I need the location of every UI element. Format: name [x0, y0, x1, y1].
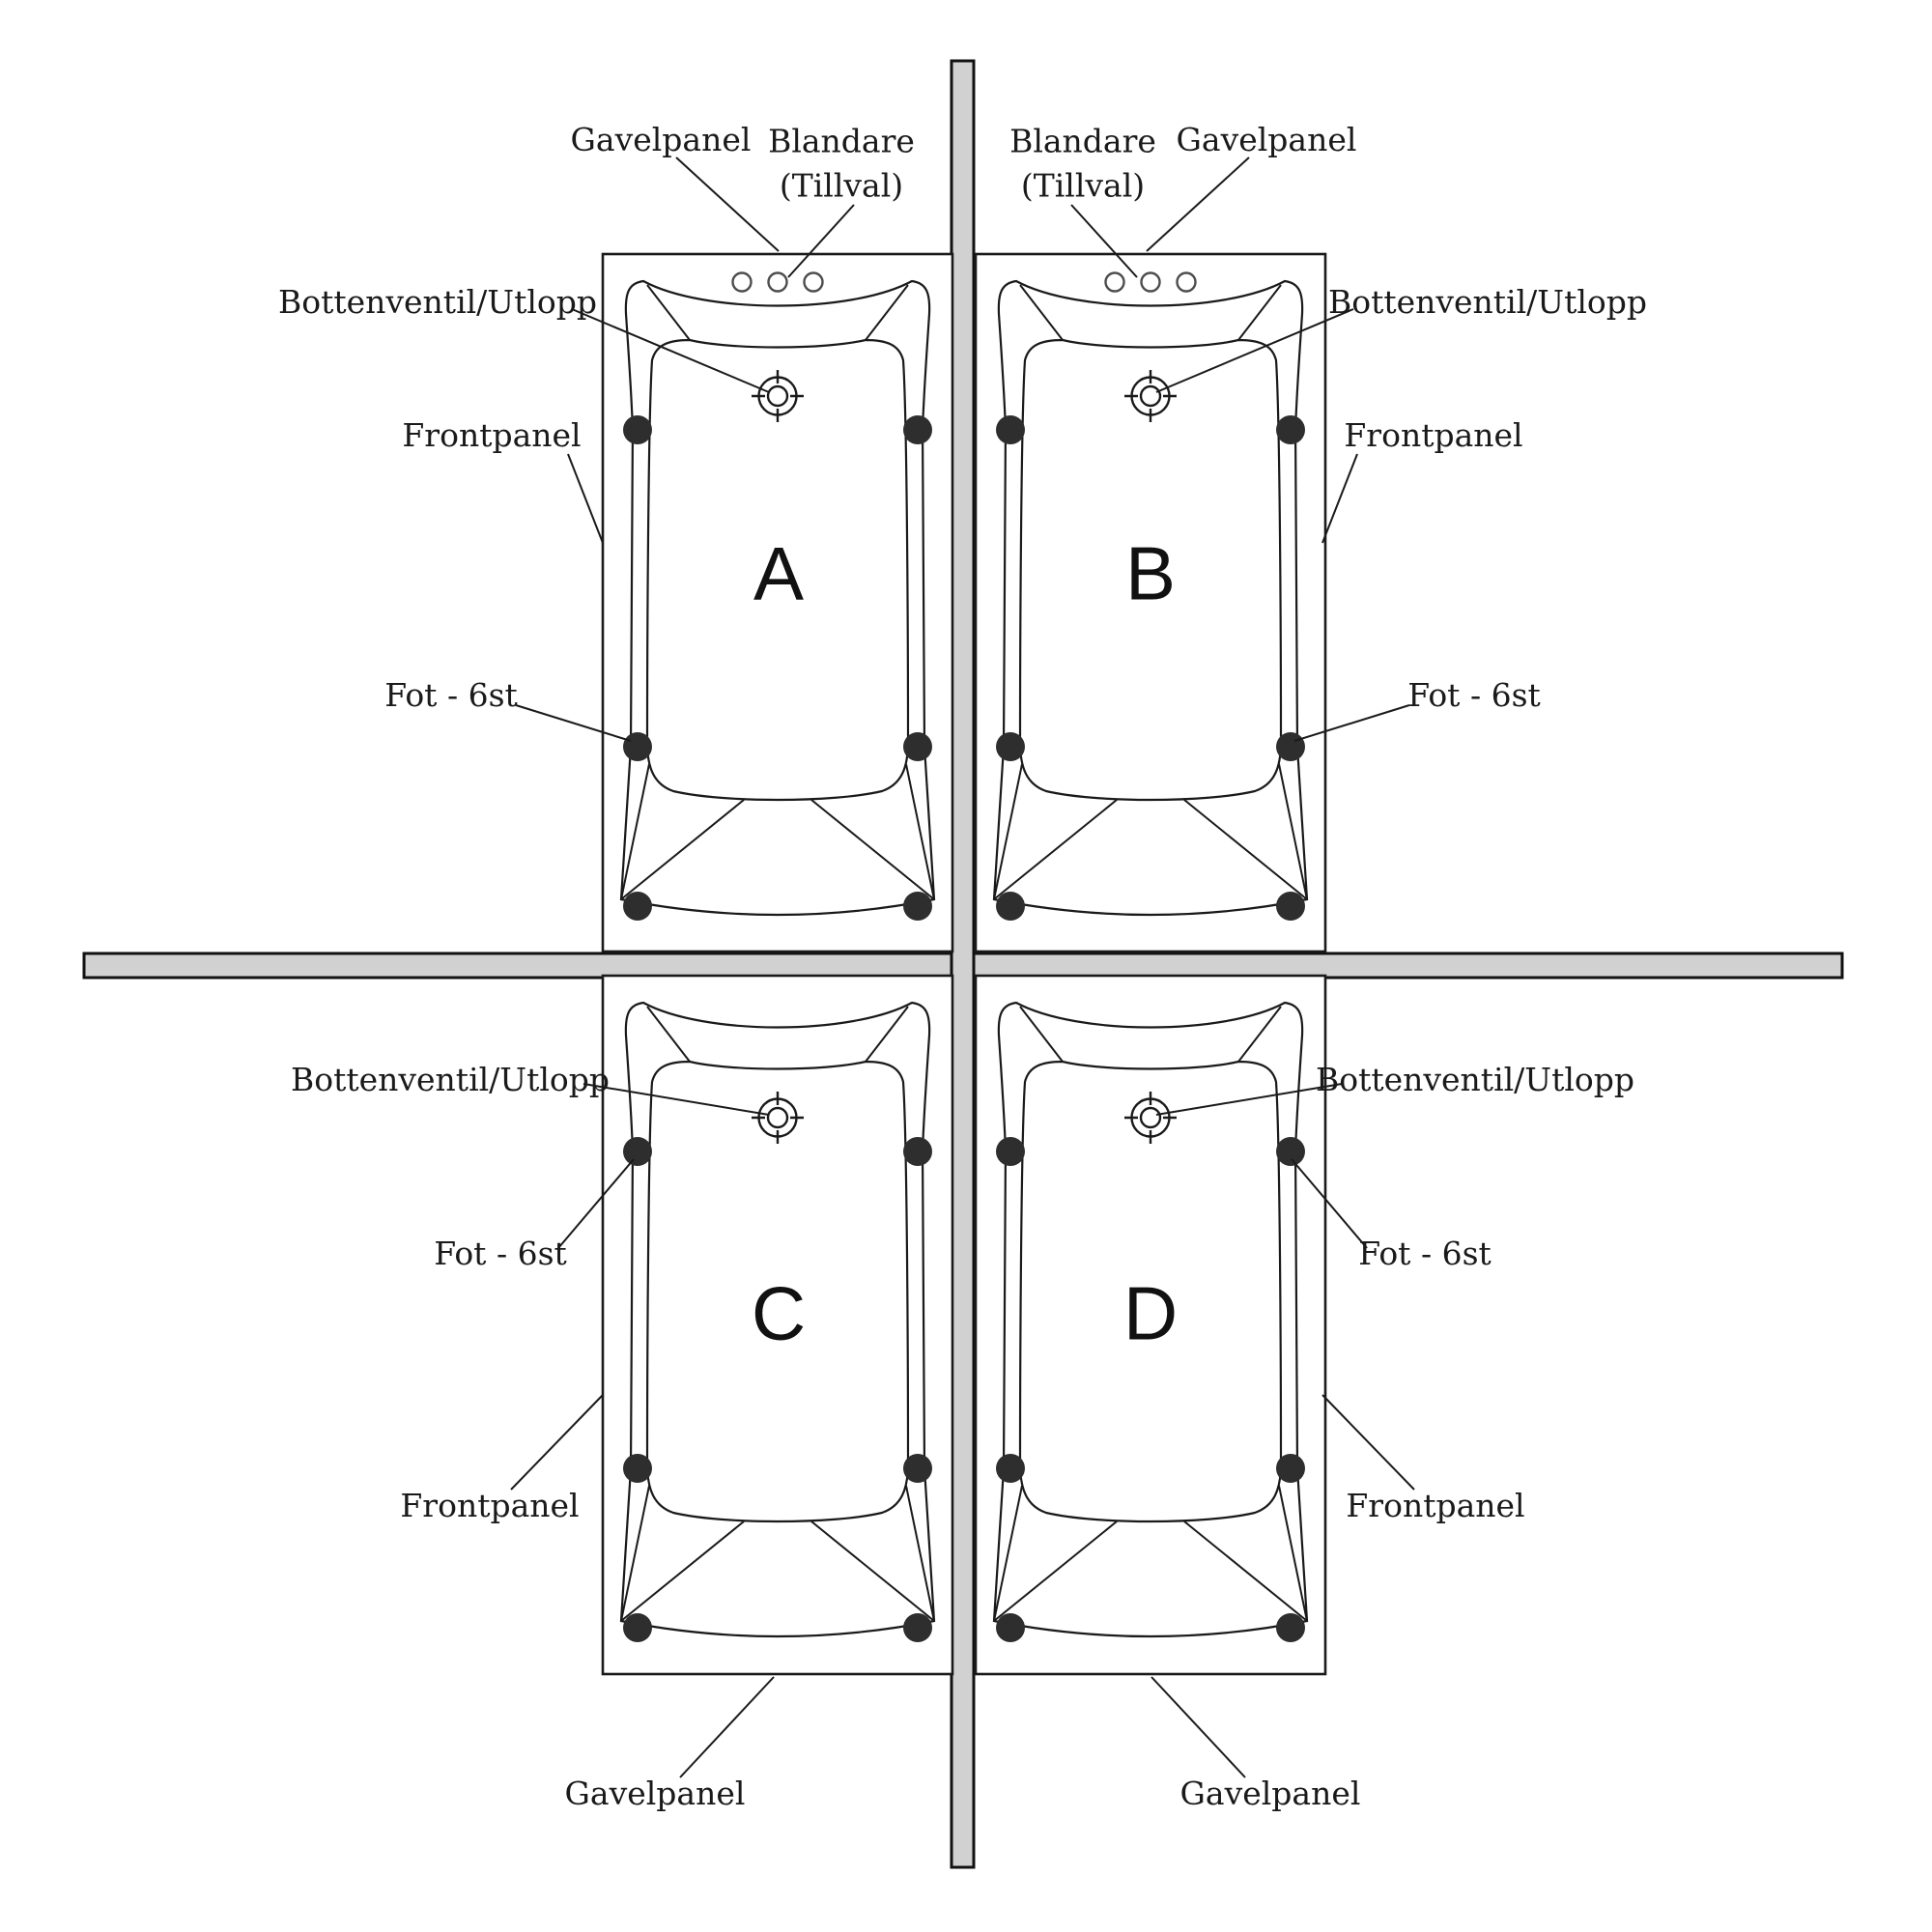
leader-frontpanel-d — [1322, 1395, 1414, 1490]
label-gavelpanel-b: Gavelpanel — [1177, 118, 1357, 162]
label-gavelpanel-a: Gavelpanel — [571, 118, 752, 162]
label-blandare-a-line2: (Tillval) — [768, 163, 915, 208]
label-blandare-b: Blandare (Tillval) — [1009, 119, 1156, 207]
label-bottenventil-b: Bottenventil/Utlopp — [1328, 280, 1647, 325]
label-bottenventil-c: Bottenventil/Utlopp — [291, 1058, 610, 1102]
label-frontpanel-b: Frontpanel — [1344, 413, 1522, 458]
label-blandare-a-line1: Blandare — [768, 119, 915, 163]
tub-letter-b: B — [1125, 530, 1176, 618]
label-fot-a: Fot - 6st — [384, 673, 518, 718]
label-frontpanel-c: Frontpanel — [400, 1484, 579, 1528]
label-blandare-b-line2: (Tillval) — [1009, 163, 1156, 208]
diagram-canvas: Gavelpanel Blandare (Tillval) Bottenvent… — [0, 0, 1932, 1932]
label-fot-c: Fot - 6st — [434, 1232, 567, 1276]
mixer-holes-a — [733, 273, 823, 292]
label-bottenventil-a: Bottenventil/Utlopp — [278, 280, 597, 325]
leader-gavelpanel-d — [1151, 1677, 1245, 1777]
wall-vertical — [952, 61, 974, 1867]
label-frontpanel-d: Frontpanel — [1346, 1484, 1524, 1528]
label-gavelpanel-d: Gavelpanel — [1180, 1772, 1361, 1816]
leader-gavelpanel-a — [676, 157, 779, 251]
label-gavelpanel-c: Gavelpanel — [565, 1772, 746, 1816]
label-fot-b: Fot - 6st — [1407, 673, 1541, 718]
label-blandare-b-line1: Blandare — [1009, 119, 1156, 163]
leader-frontpanel-b — [1322, 454, 1357, 543]
label-blandare-a: Blandare (Tillval) — [768, 119, 915, 207]
label-frontpanel-a: Frontpanel — [402, 413, 581, 458]
label-fot-d: Fot - 6st — [1358, 1232, 1492, 1276]
leader-gavelpanel-b — [1147, 157, 1249, 251]
tub-letter-a: A — [753, 530, 804, 618]
leader-frontpanel-c — [511, 1395, 603, 1490]
leader-gavelpanel-c — [680, 1677, 774, 1777]
tub-letter-d: D — [1123, 1270, 1178, 1358]
leader-frontpanel-a — [568, 454, 603, 543]
mixer-holes-b — [1106, 273, 1196, 292]
tub-letter-c: C — [752, 1270, 806, 1358]
label-bottenventil-d: Bottenventil/Utlopp — [1316, 1058, 1634, 1102]
